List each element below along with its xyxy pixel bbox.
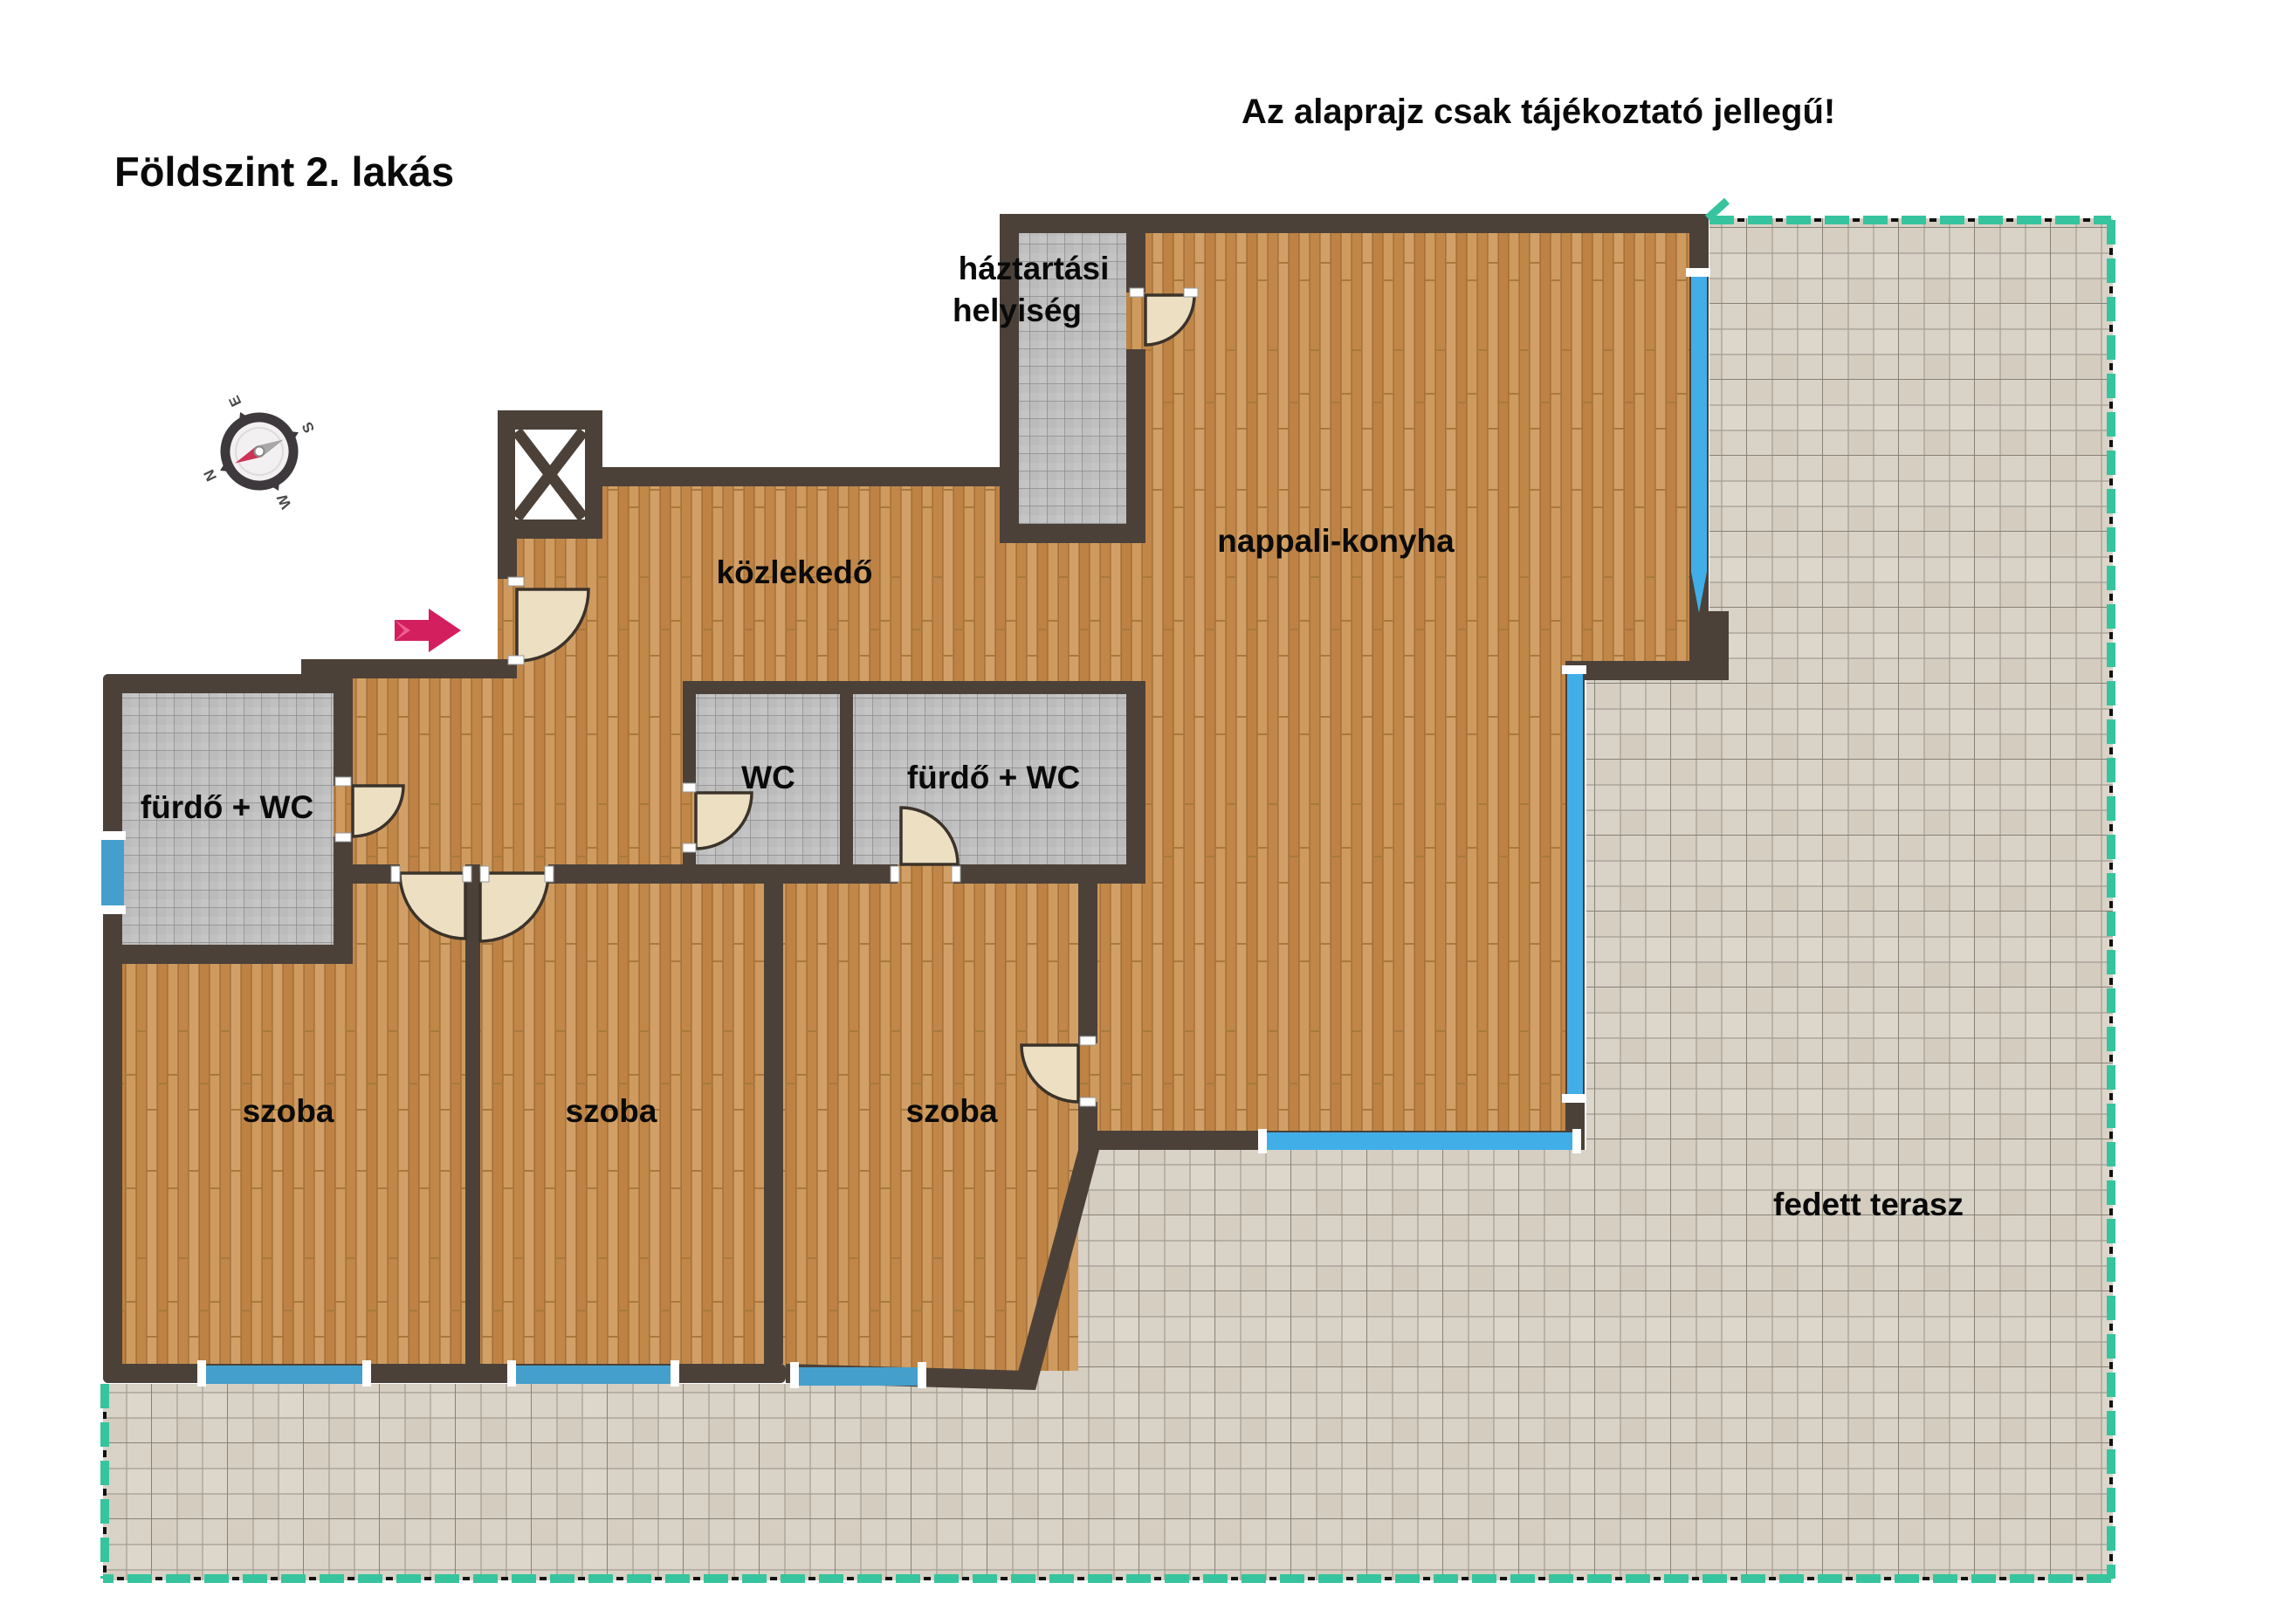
label-hallway: közlekedő (717, 554, 873, 590)
label-wc: WC (741, 760, 795, 795)
label-bath-left: fürdő + WC (141, 789, 313, 825)
label-utility-line1: háztartási (959, 251, 1110, 286)
compass-w: W (273, 491, 295, 512)
compass-s: S (299, 419, 318, 436)
label-terrace: fedett terasz (1773, 1187, 1964, 1222)
label-bath-mid: fürdő + WC (907, 760, 1080, 795)
label-bedroom-1: szoba (243, 1093, 334, 1129)
entrance-arrow-icon (395, 609, 461, 652)
disclaimer-text: Az alaprajz csak tájékoztató jellegű! (1242, 93, 1835, 131)
label-utility-line2: helyiség (953, 292, 1082, 328)
window-living-lower-right (1567, 672, 1583, 1096)
compass-icon: N S E W (176, 369, 344, 535)
page-title: Földszint 2. lakás (114, 148, 454, 195)
window-living-bottom (1263, 1132, 1576, 1150)
label-bedroom-2: szoba (566, 1093, 657, 1129)
label-bedroom-3: szoba (906, 1093, 998, 1129)
compass-n: N (201, 467, 220, 484)
label-living-kitchen: nappali-konyha (1217, 523, 1455, 559)
compass-e: E (225, 393, 244, 409)
window-living-upper-right (1691, 275, 1707, 572)
floorplan-canvas: N S E W Földszint 2. lakás Az alaprajz c… (0, 0, 2270, 1624)
window-bedroom-3 (797, 1367, 919, 1386)
floorplan-page: N S E W Földszint 2. lakás Az alaprajz c… (0, 0, 2270, 1624)
window-bedroom-2 (514, 1366, 672, 1384)
window-bedroom-1 (204, 1366, 364, 1384)
shaft-box (515, 430, 585, 520)
window-bath-left (101, 840, 124, 905)
